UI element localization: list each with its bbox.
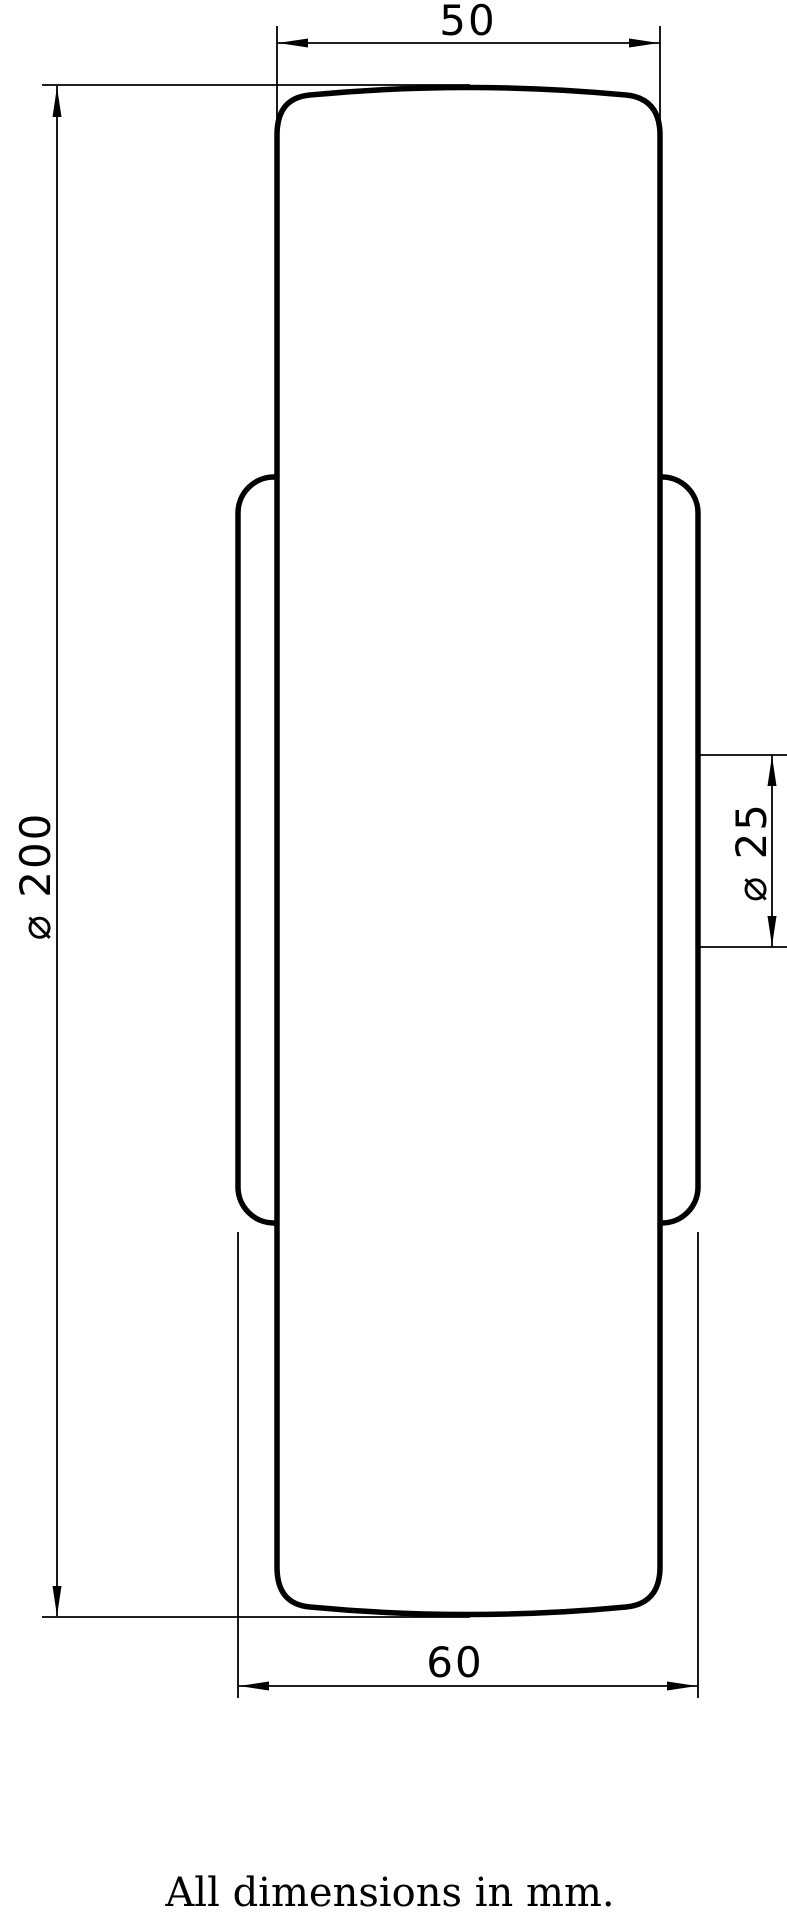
arrowhead-bottom xyxy=(768,916,777,946)
arrowhead-bottom xyxy=(53,1586,62,1616)
wheel-drawing: 50 ⌀ 200 ⌀ 25 60 xyxy=(0,0,787,1920)
wheel-diameter-label: ⌀ 200 xyxy=(11,812,60,941)
arrowhead-left xyxy=(278,39,308,48)
wheel-outline xyxy=(238,88,698,1615)
arrowhead-left xyxy=(239,1682,269,1691)
arrowhead-right xyxy=(629,39,659,48)
tread-outline xyxy=(277,88,660,1615)
hub-width-label: 60 xyxy=(426,1638,483,1687)
units-note: All dimensions in mm. xyxy=(164,1870,614,1916)
arrowhead-top xyxy=(768,756,777,786)
tread-width-label: 50 xyxy=(439,0,496,45)
arrowhead-top xyxy=(53,87,62,117)
dimension-bore-diameter: ⌀ 25 xyxy=(700,755,787,947)
bore-diameter-label: ⌀ 25 xyxy=(727,802,776,902)
arrowhead-right xyxy=(667,1682,697,1691)
technical-drawing-page: 50 ⌀ 200 ⌀ 25 60 xyxy=(0,0,787,1920)
